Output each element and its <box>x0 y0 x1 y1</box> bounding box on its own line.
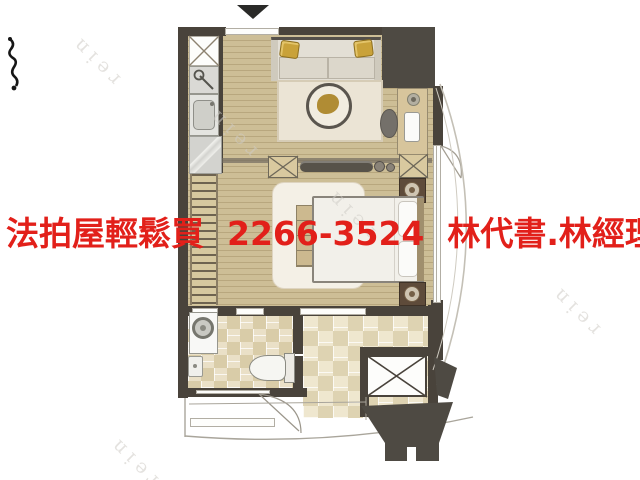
sofa-arm-right <box>374 40 381 81</box>
tv-side-table-right <box>399 154 428 178</box>
kitchen-counter <box>189 136 222 174</box>
speaker-1 <box>374 161 385 172</box>
toilet-bowl <box>249 355 286 381</box>
desk-plant <box>407 93 420 106</box>
watermark-text: rein <box>545 280 605 340</box>
bath-door-opening-2 <box>236 308 264 315</box>
bath-sink <box>188 356 203 377</box>
wall-bath-divider-upper <box>293 316 303 354</box>
elevator-shaft <box>366 355 427 397</box>
ad-text-overlay: 法拍屋輕鬆買 2266-3524 林代書.林經理 <box>6 216 636 252</box>
entry-direction-arrow <box>237 5 269 19</box>
entry-door-threshold <box>225 28 279 35</box>
tv-side-table-left <box>268 156 298 178</box>
gold-pillow-left <box>279 40 300 59</box>
structure-column <box>382 27 435 88</box>
wall-utility-right <box>428 305 438 407</box>
cooktop <box>189 66 219 94</box>
right-door-swing <box>441 146 461 178</box>
sofa-cushion-left <box>279 57 328 79</box>
corner-script-mark <box>8 37 17 90</box>
lamp-bottom <box>404 286 420 302</box>
speaker-2 <box>386 163 395 172</box>
bedroom-window-sill <box>300 308 366 315</box>
sofa-arm-left <box>271 40 278 81</box>
floorplan-image: rein rein rein rein rein 法拍屋輕鬆買 2266-352… <box>0 0 640 480</box>
balcony-planter <box>190 418 275 427</box>
sofa-cushion-right <box>328 57 375 79</box>
watermark-text: rein <box>65 30 125 90</box>
desk-chair <box>380 109 398 138</box>
watermark-text: rein <box>103 431 163 480</box>
wall-left <box>178 27 188 398</box>
wall-top-right <box>279 27 391 35</box>
entry-closet <box>189 36 219 66</box>
gold-pillow-right <box>353 39 374 58</box>
bath-door-swing <box>259 394 301 433</box>
washer-door <box>192 317 214 339</box>
bath-window-sill <box>196 390 270 394</box>
wall-right-upper <box>433 86 443 147</box>
desk-laptop <box>404 112 420 142</box>
tv-console <box>300 161 373 172</box>
